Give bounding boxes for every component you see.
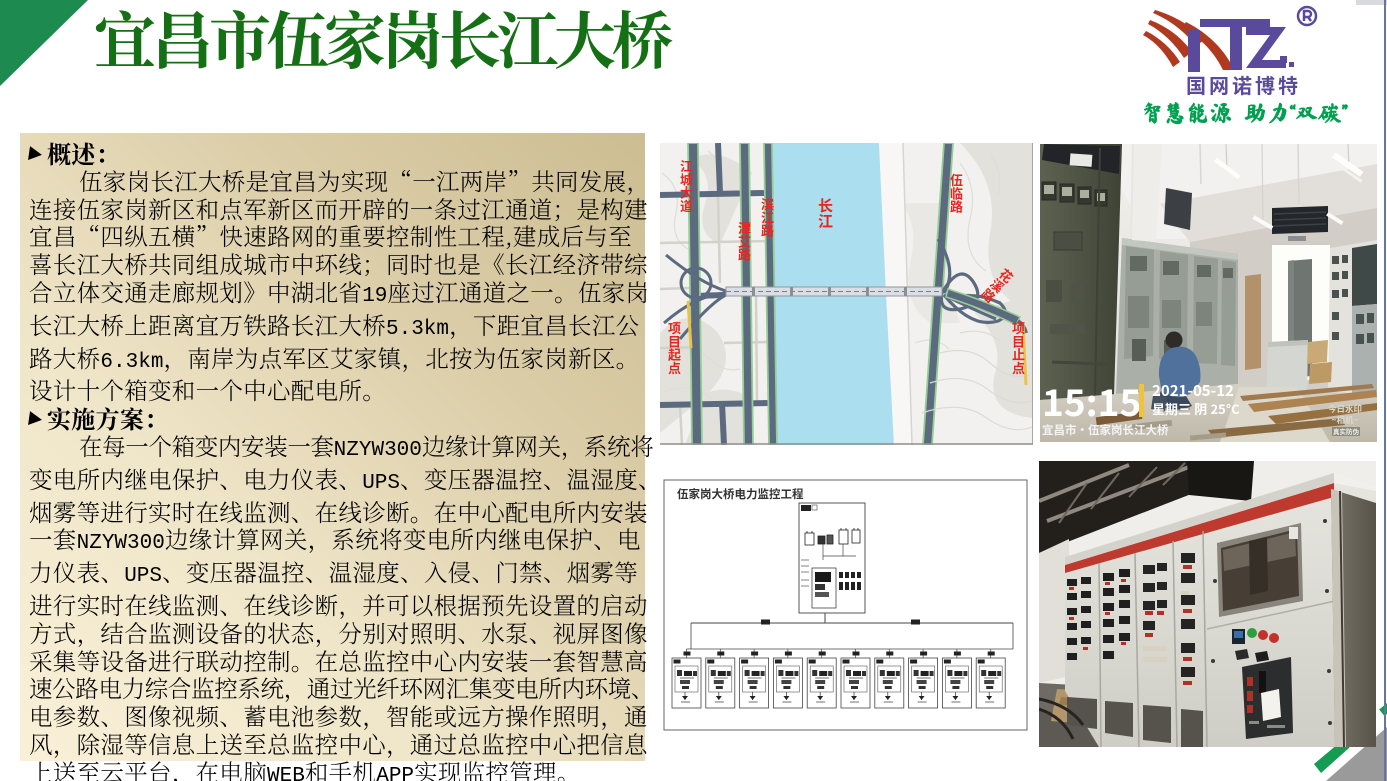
svg-text:江城大道: 江城大道 — [680, 156, 693, 215]
svg-text:伍家岗大桥电力监控工程: 伍家岗大桥电力监控工程 — [677, 486, 804, 502]
svg-text:伍临路: 伍临路 — [950, 170, 963, 216]
svg-text:滨江路: 滨江路 — [761, 194, 774, 240]
svg-text:真实防伪: 真实防伪 — [1333, 426, 1360, 436]
svg-text:项目止点: 项目止点 — [1012, 318, 1025, 377]
svg-text:项目起点: 项目起点 — [668, 318, 681, 377]
svg-text:潭艾路: 潭艾路 — [738, 218, 751, 264]
svg-text:星期三 阴 25°C: 星期三 阴 25°C — [1152, 399, 1240, 418]
svg-text:国网诺博特: 国网诺博特 — [1186, 70, 1301, 99]
svg-text:宜昌市·伍家岗长江大桥: 宜昌市·伍家岗长江大桥 — [1042, 422, 1169, 438]
svg-text:15:15: 15:15 — [1042, 373, 1141, 427]
svg-text:2021-05-12: 2021-05-12 — [1152, 380, 1234, 401]
svg-text:~相机~: ~相机~ — [1331, 414, 1358, 426]
svg-text:长江: 长江 — [818, 195, 833, 231]
